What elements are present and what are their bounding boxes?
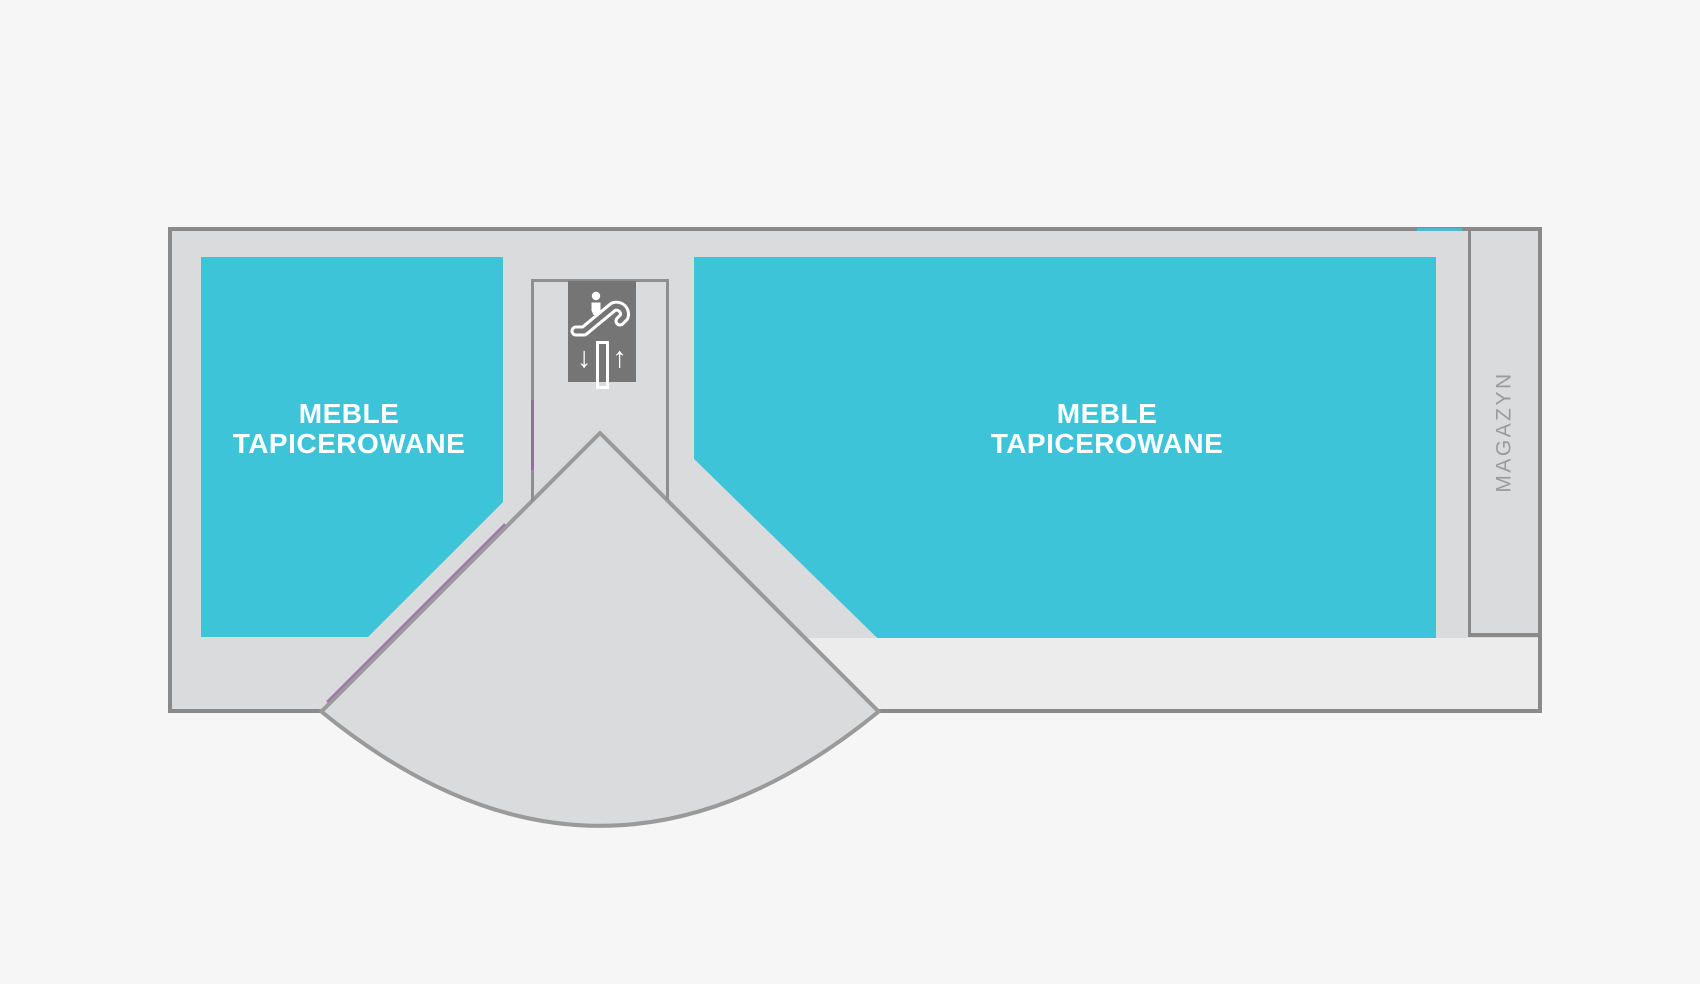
zone-label-line: TAPICEROWANE (199, 429, 499, 459)
zone-label-left: MEBLE TAPICEROWANE (199, 399, 499, 459)
magazyn-area: MAGAZYN (1468, 231, 1538, 637)
zone-label-line: MEBLE (957, 399, 1257, 429)
zone-label-line: MEBLE (199, 399, 499, 429)
enclosure-wall-right (666, 279, 669, 500)
floor-plan: MAGAZYN MEBLE TAPICEROWANE MEBLE TAPICER… (0, 0, 1700, 984)
escalator-direction-row: ↓ ↑ (568, 341, 636, 389)
top-wall-marking (1417, 228, 1462, 231)
zone-label-right: MEBLE TAPICEROWANE (957, 399, 1257, 459)
down-arrow-icon: ↓ (577, 344, 592, 373)
zone-label-line: TAPICEROWANE (957, 429, 1257, 459)
escalator-icon (568, 286, 636, 342)
magazyn-label: MAGAZYN (1493, 371, 1517, 492)
corridor-area (700, 638, 1538, 709)
up-arrow-icon: ↑ (613, 344, 628, 373)
escalator-sign: ↓ ↑ (568, 281, 636, 382)
escalator-divider-bar (596, 341, 609, 389)
accent-wall-segment (531, 400, 534, 470)
